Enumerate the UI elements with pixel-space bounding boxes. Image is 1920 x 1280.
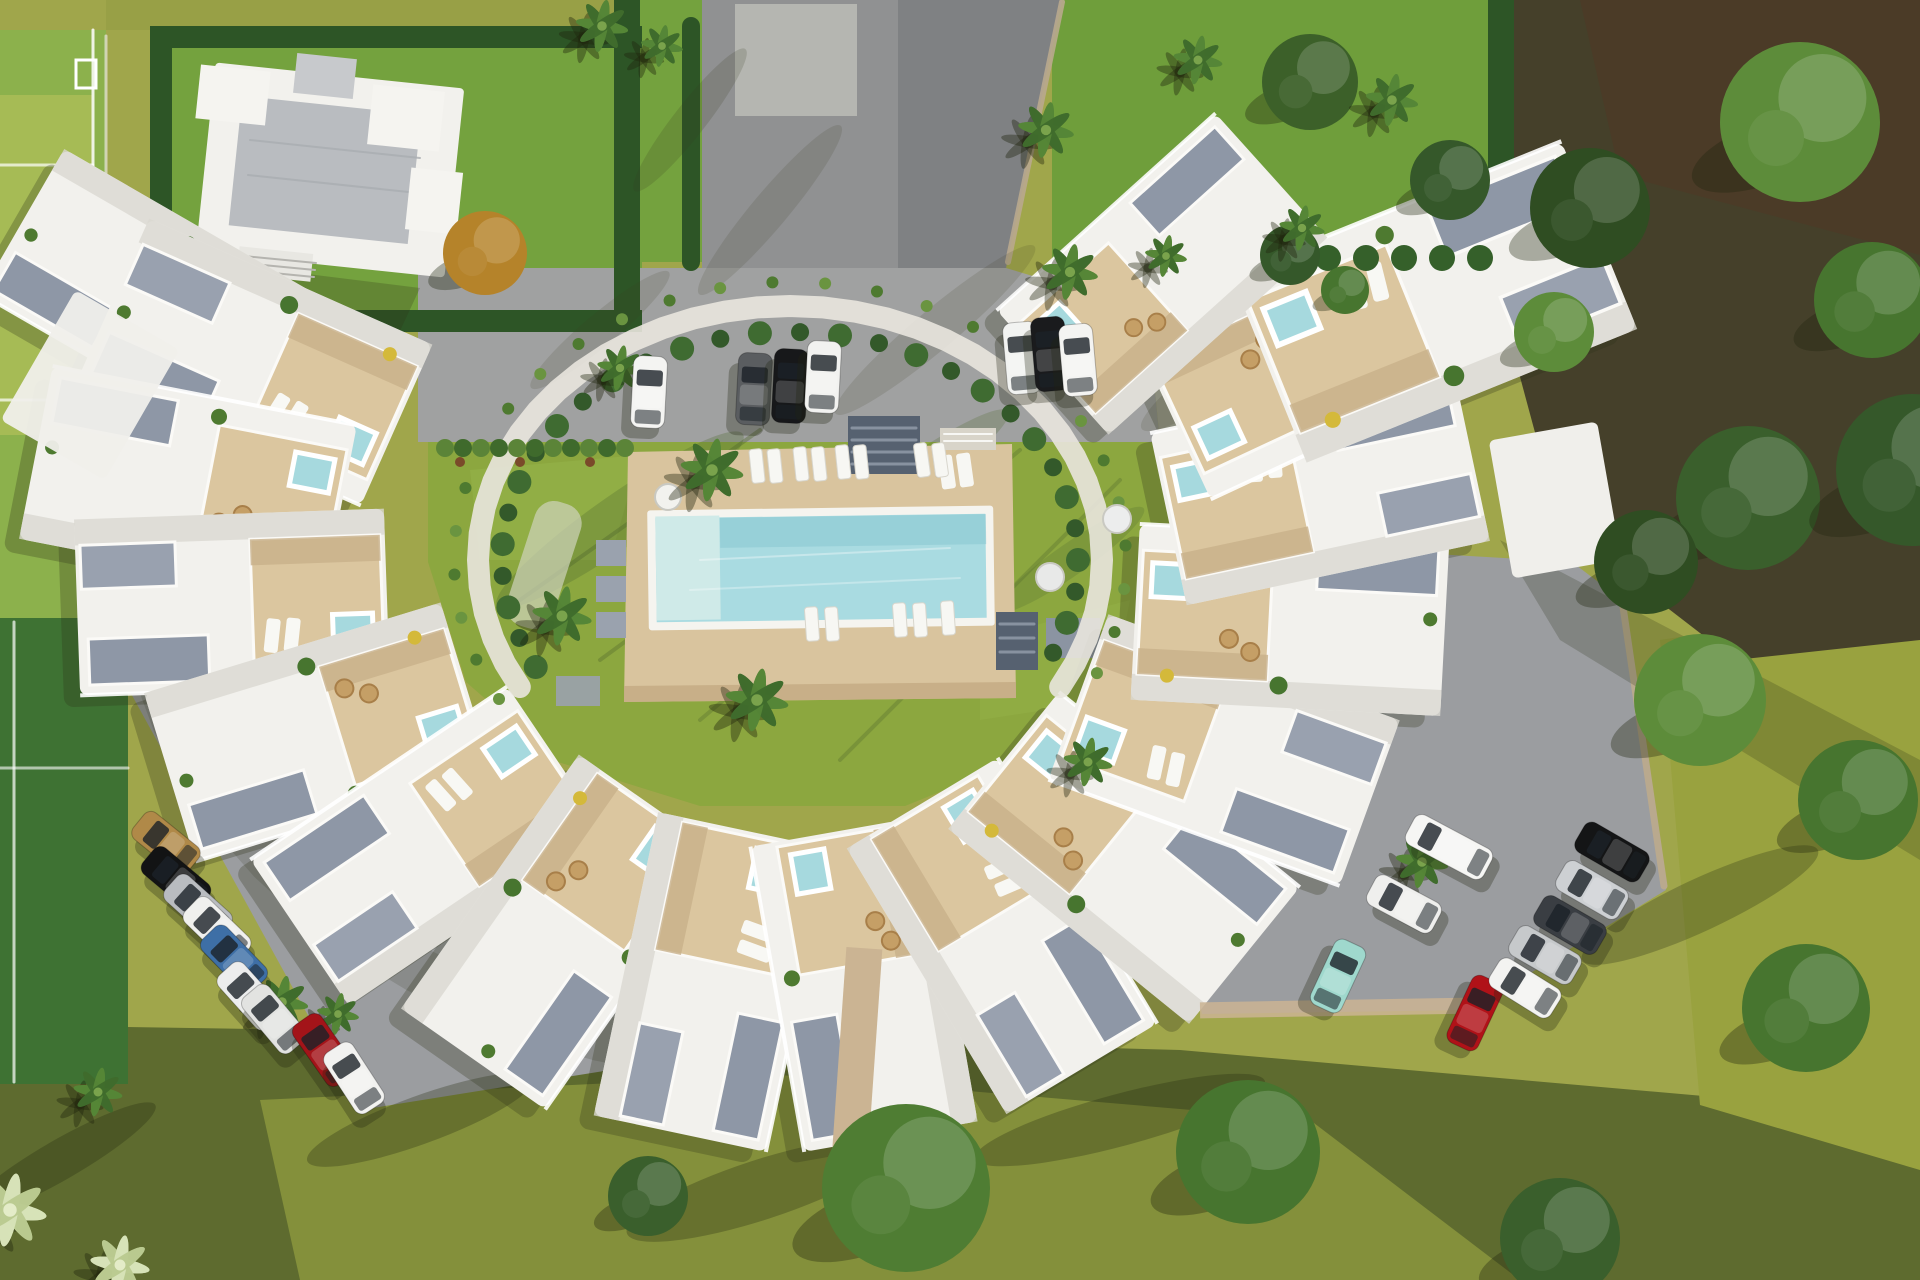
terrace-jacuzzi bbox=[790, 849, 830, 894]
car-windshield bbox=[1063, 337, 1090, 355]
car-windshield bbox=[636, 369, 663, 386]
sun-lounger bbox=[892, 603, 907, 638]
gravel-roof bbox=[88, 635, 210, 685]
terrace-jacuzzi bbox=[289, 452, 335, 493]
sun-lounger bbox=[804, 607, 819, 642]
sun-lounger bbox=[824, 607, 839, 642]
render-canvas bbox=[0, 0, 1920, 1280]
sun-lounger bbox=[940, 601, 955, 636]
wicker-chair bbox=[1241, 643, 1260, 662]
sun-lounger bbox=[912, 603, 927, 638]
car-windshield bbox=[810, 354, 837, 371]
aerial-site-render bbox=[0, 0, 1920, 1280]
wicker-chair bbox=[1219, 629, 1238, 648]
car-windshield bbox=[741, 366, 768, 383]
